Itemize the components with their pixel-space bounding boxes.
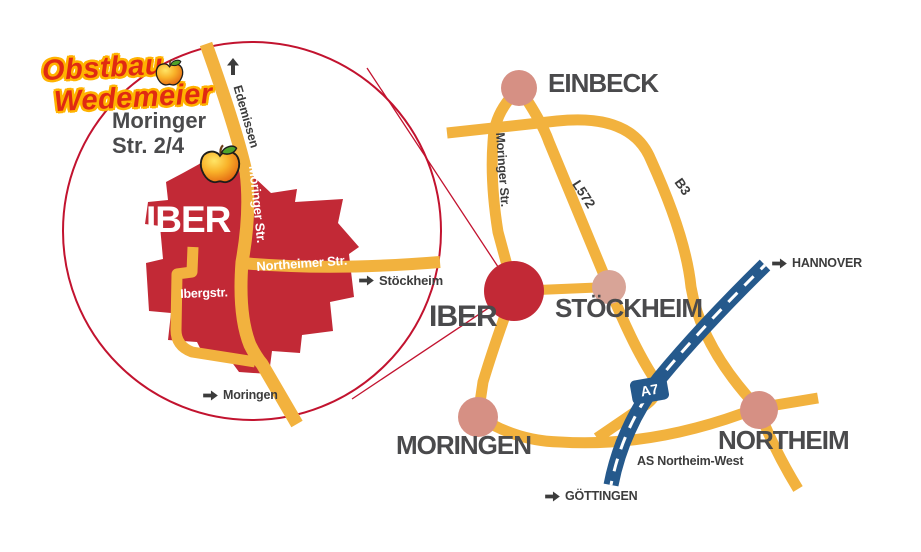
moringen-direction: Moringen: [203, 389, 278, 402]
inset-area-label: IBER: [146, 201, 230, 238]
apple-location-icon: [196, 143, 244, 191]
city-label-moringen: MORINGEN: [396, 432, 531, 458]
city-label-northeim: NORTHEIM: [718, 427, 849, 453]
arrow-right-icon: [359, 275, 374, 286]
junction-label-as-northeim-west: AS Northeim-West: [637, 455, 743, 468]
stockheim-direction-label: Stöckheim: [379, 274, 443, 287]
arrow-up-icon: [227, 58, 239, 75]
a7-badge-label: A7: [639, 381, 659, 400]
city-label-iber: IBER: [429, 302, 497, 332]
stockheim-direction: Stöckheim: [359, 274, 443, 287]
hannover-direction-label: HANNOVER: [792, 257, 862, 270]
arrow-right-icon: [545, 491, 560, 502]
arrow-right-icon: [203, 390, 218, 401]
goettingen-direction-label: GÖTTINGEN: [565, 490, 638, 503]
city-label-stockheim: STÖCKHEIM: [555, 295, 702, 321]
goettingen-direction: GÖTTINGEN: [545, 490, 638, 503]
route-map-page: Obstbau Wedemeier Moringer Str. 2/4 IBER…: [0, 0, 921, 552]
address-line2: Str. 2/4: [112, 133, 206, 158]
inset-ibergstr-label: Ibergstr.: [180, 286, 228, 300]
dot-northeim: [740, 391, 778, 429]
address-line1: Moringer: [112, 108, 206, 133]
address-text: Moringer Str. 2/4: [112, 108, 206, 158]
arrow-right-icon: [772, 258, 787, 269]
hannover-direction: HANNOVER: [772, 257, 862, 270]
apple-logo-icon: [153, 58, 186, 91]
city-label-einbeck: EINBECK: [548, 70, 658, 96]
dot-einbeck: [501, 70, 537, 106]
moringen-direction-label: Moringen: [223, 389, 278, 402]
